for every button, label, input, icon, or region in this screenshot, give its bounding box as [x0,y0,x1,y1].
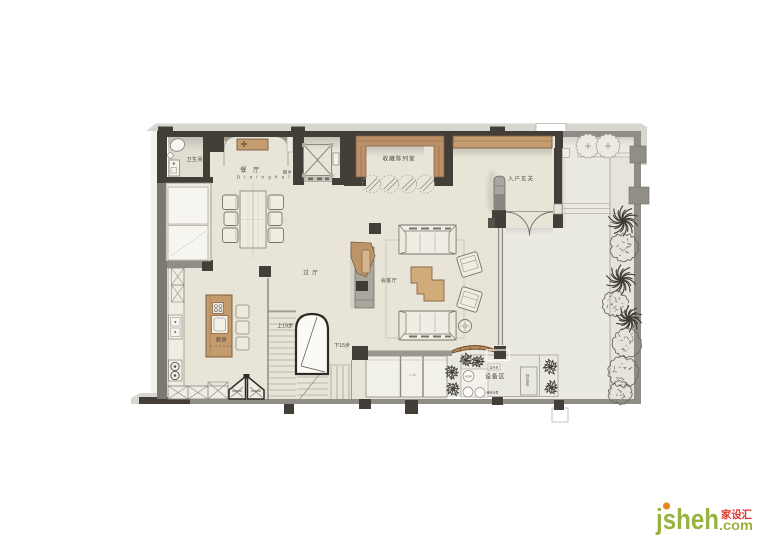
svg-text:室外机: 室外机 [490,365,499,370]
svg-text:1.15: 1.15 [410,373,416,377]
svg-text:上19步: 上19步 [277,322,293,330]
svg-text:设备区: 设备区 [485,373,505,381]
svg-text:厨房: 厨房 [216,336,227,344]
svg-text:会客厅: 会客厅 [381,277,398,284]
svg-text:D i n i n g h a l: D i n i n g h a l [237,175,291,180]
svg-text:组合水泵: 组合水泵 [487,390,499,395]
svg-text:收藏陈列室: 收藏陈列室 [383,155,416,163]
svg-text:卫生间: 卫生间 [187,156,204,163]
svg-text:下15步: 下15步 [334,342,350,349]
svg-text:室外机组: 室外机组 [526,374,531,386]
svg-text:ACRP: ACRP [465,375,472,379]
svg-text:家设汇: 家设汇 [721,508,752,521]
svg-text:k i t c h e n: k i t c h e n [210,344,232,348]
svg-text:过 厅: 过 厅 [303,269,319,277]
svg-text:入户玄关: 入户玄关 [508,175,534,183]
svg-text:餐 厅: 餐 厅 [240,166,261,174]
